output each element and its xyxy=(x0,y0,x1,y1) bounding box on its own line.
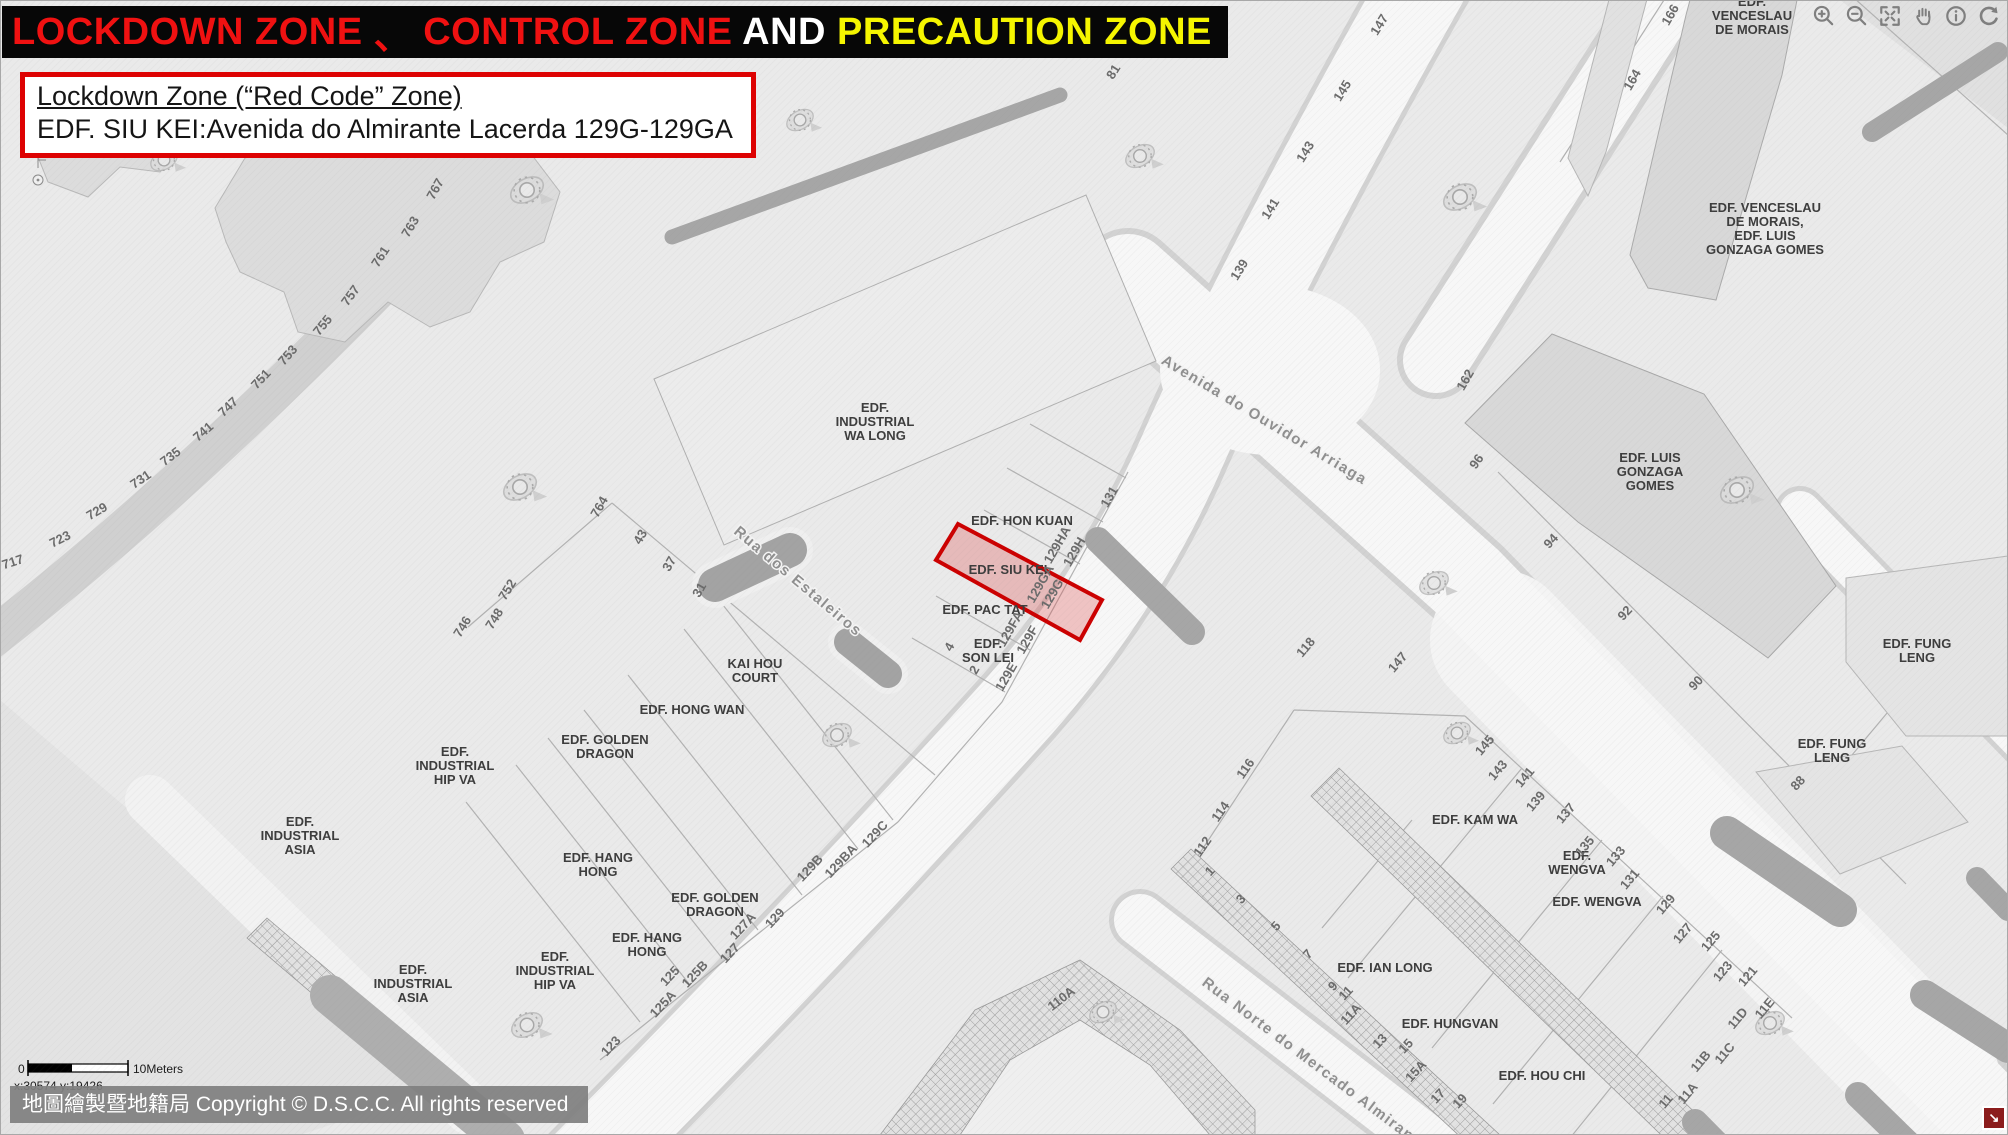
copyright-text: 地圖繪製暨地籍局 Copyright © D.S.C.C. All rights… xyxy=(22,1093,568,1116)
map-viewer-page: { "banner": { "segments": [ {"text": "LO… xyxy=(0,0,2008,1135)
banner-control-text: CONTROL ZONE xyxy=(423,11,732,54)
building-label: EDF. KAM WA xyxy=(1432,812,1519,827)
pan-icon[interactable] xyxy=(1911,4,1935,28)
resize-arrow-icon: ↘ xyxy=(1989,1110,2000,1126)
building-label: EDF. HON KUAN xyxy=(971,513,1073,528)
zoom-in-icon[interactable] xyxy=(1812,4,1836,28)
banner-and-text: AND xyxy=(733,11,838,54)
identify-icon[interactable] xyxy=(1944,4,1968,28)
scale-label: 10Meters xyxy=(133,1062,183,1076)
callout-title: Lockdown Zone (“Red Code” Zone) xyxy=(37,81,733,112)
copyright-bar: 地圖繪製暨地籍局 Copyright © D.S.C.C. All rights… xyxy=(10,1086,588,1123)
building-label: KAI HOUCOURT xyxy=(728,656,783,685)
map-canvas[interactable]: Rua dos EstaleirosAvenida do Ouvidor Arr… xyxy=(0,0,2008,1135)
scale-zero: 0 xyxy=(18,1062,25,1076)
building-label: EDF. LUISGONZAGAGOMES xyxy=(1617,450,1684,493)
lockdown-zone-callout: Lockdown Zone (“Red Code” Zone) EDF. SIU… xyxy=(20,72,756,158)
zoom-out-icon[interactable] xyxy=(1845,4,1869,28)
map-toolbar xyxy=(1812,4,2008,28)
full-extent-icon[interactable] xyxy=(1878,4,1902,28)
overview-map-button[interactable]: ↘ xyxy=(1982,1106,2006,1130)
callout-address: EDF. SIU KEI:Avenida do Almirante Lacerd… xyxy=(37,114,733,145)
banner-separator: 、 xyxy=(363,5,424,60)
building-label: EDF. HONG WAN xyxy=(640,702,745,717)
zone-banner: LOCKDOWN ZONE 、 CONTROL ZONE AND PRECAUT… xyxy=(2,6,1228,58)
building-label: EDF. HOU CHI xyxy=(1499,1068,1586,1083)
banner-precaution-text: PRECAUTION ZONE xyxy=(837,11,1212,54)
banner-lockdown-text: LOCKDOWN ZONE xyxy=(12,11,363,54)
building-label: EDF. WENGVA xyxy=(1552,894,1642,909)
previous-extent-icon[interactable] xyxy=(1977,4,2001,28)
building-label: EDF. HUNGVAN xyxy=(1402,1016,1499,1031)
building-label: EDF. IAN LONG xyxy=(1337,960,1432,975)
